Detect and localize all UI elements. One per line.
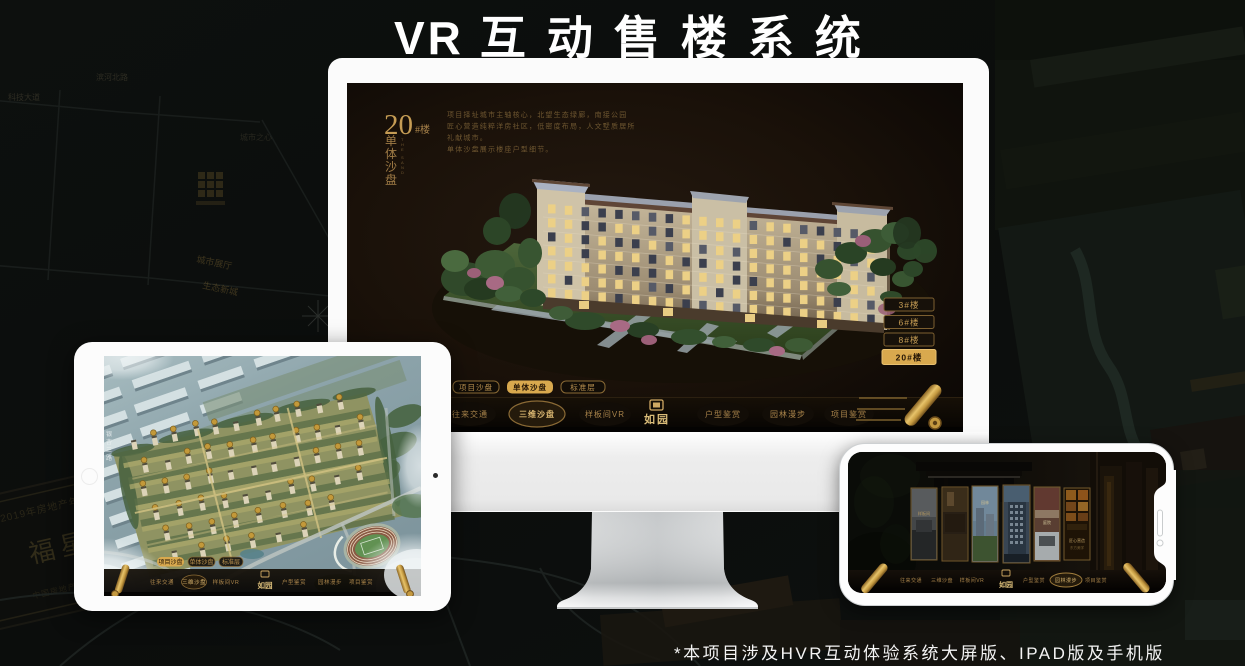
svg-text:8#楼: 8#楼 [899, 335, 920, 345]
svg-text:如园: 如园 [258, 580, 273, 590]
svg-text:单体沙盘展示楼座户型细节。: 单体沙盘展示楼座户型细节。 [447, 145, 554, 154]
svg-text:往来交通: 往来交通 [900, 577, 922, 584]
svg-text:科技大道: 科技大道 [8, 92, 40, 102]
svg-text:园林漫步: 园林漫步 [770, 409, 806, 419]
svg-text:户型鉴赏: 户型鉴赏 [1023, 577, 1045, 584]
svg-text:单体沙盘: 单体沙盘 [189, 558, 213, 566]
svg-text:三维沙盘: 三维沙盘 [931, 577, 953, 584]
svg-text:D: D [401, 170, 404, 175]
svg-text:样板间VR: 样板间VR [585, 409, 625, 419]
svg-text:体: 体 [385, 147, 397, 161]
svg-text:项目择址城市主轴核心，北望生态绿廊，南接公园: 项目择址城市主轴核心，北望生态绿廊，南接公园 [447, 110, 627, 119]
svg-text:样板间VR: 样板间VR [213, 578, 240, 586]
svg-text:E: E [401, 147, 404, 152]
svg-text:#楼: #楼 [415, 123, 430, 136]
svg-text:如园: 如园 [999, 580, 1013, 589]
svg-text:项目鉴赏: 项目鉴赏 [1085, 577, 1107, 584]
svg-text:园林漫步: 园林漫步 [318, 578, 342, 586]
svg-text:往来交通: 往来交通 [452, 409, 488, 419]
svg-text:项目鉴赏: 项目鉴赏 [349, 578, 373, 586]
svg-text:三: 三 [106, 447, 112, 454]
svg-text:户型鉴赏: 户型鉴赏 [282, 578, 306, 586]
svg-text:盘: 盘 [385, 172, 397, 187]
svg-text:标准层: 标准层 [570, 382, 596, 392]
svg-text:3#楼: 3#楼 [899, 300, 920, 310]
svg-text:沙: 沙 [385, 160, 397, 174]
svg-text:礼献城市。: 礼献城市。 [447, 133, 488, 142]
svg-text:杏: 杏 [106, 438, 112, 446]
svg-text:项目沙盘: 项目沙盘 [459, 382, 493, 392]
svg-text:三维沙盘: 三维沙盘 [519, 409, 555, 419]
svg-text:匠心营造纯粹洋房社区，低密度布局，人文墅质居所: 匠心营造纯粹洋房社区，低密度布局，人文墅质居所 [447, 122, 636, 131]
svg-text:银: 银 [106, 430, 112, 438]
svg-text:6#楼: 6#楼 [899, 318, 920, 328]
svg-text:园林漫步: 园林漫步 [1055, 577, 1077, 584]
svg-text:城市之心: 城市之心 [240, 132, 272, 142]
svg-text:单: 单 [385, 134, 397, 148]
svg-text:20#楼: 20#楼 [896, 353, 923, 363]
svg-text:路: 路 [106, 454, 112, 462]
svg-text:单体沙盘: 单体沙盘 [513, 382, 547, 392]
svg-text:样板间VR: 样板间VR [960, 577, 984, 584]
svg-text:项目沙盘: 项目沙盘 [158, 558, 182, 566]
svg-text:如园: 如园 [644, 412, 670, 426]
svg-text:标准层: 标准层 [222, 558, 240, 566]
svg-text:往来交通: 往来交通 [150, 578, 174, 586]
svg-text:户型鉴赏: 户型鉴赏 [705, 409, 741, 419]
svg-text:三维沙盘: 三维沙盘 [182, 578, 206, 586]
svg-text:项目鉴赏: 项目鉴赏 [831, 409, 867, 419]
svg-text:滨河北路: 滨河北路 [96, 72, 128, 82]
